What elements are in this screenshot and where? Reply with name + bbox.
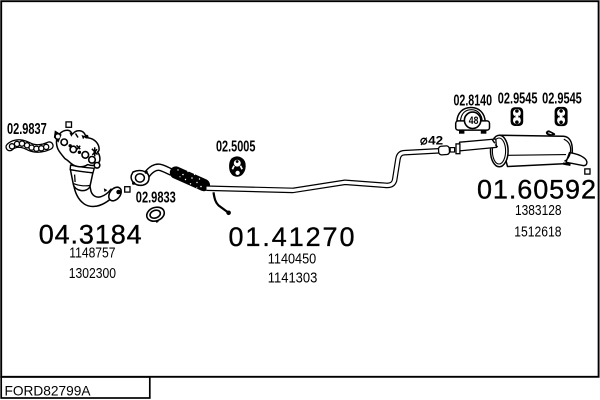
svg-text:02.9545: 02.9545: [542, 91, 582, 108]
svg-text:1148757: 1148757: [69, 245, 115, 262]
svg-text:02.9837: 02.9837: [7, 121, 47, 138]
svg-text:FORD82799A: FORD82799A: [5, 383, 92, 398]
svg-text:1512618: 1512618: [514, 224, 561, 241]
svg-text:01.60592: 01.60592: [477, 174, 596, 204]
svg-text:02.9545: 02.9545: [498, 91, 538, 108]
svg-text:1383128: 1383128: [515, 202, 562, 219]
svg-text:1140450: 1140450: [268, 251, 316, 268]
svg-text:02.8140: 02.8140: [454, 93, 493, 110]
svg-text:02.5005: 02.5005: [216, 139, 256, 156]
svg-text:42: 42: [428, 134, 443, 148]
svg-text:02.9833: 02.9833: [136, 190, 176, 207]
svg-text:1302300: 1302300: [69, 265, 116, 282]
svg-text:01.41270: 01.41270: [229, 222, 355, 252]
svg-text:48: 48: [469, 115, 479, 127]
svg-text:1141303: 1141303: [268, 270, 318, 287]
